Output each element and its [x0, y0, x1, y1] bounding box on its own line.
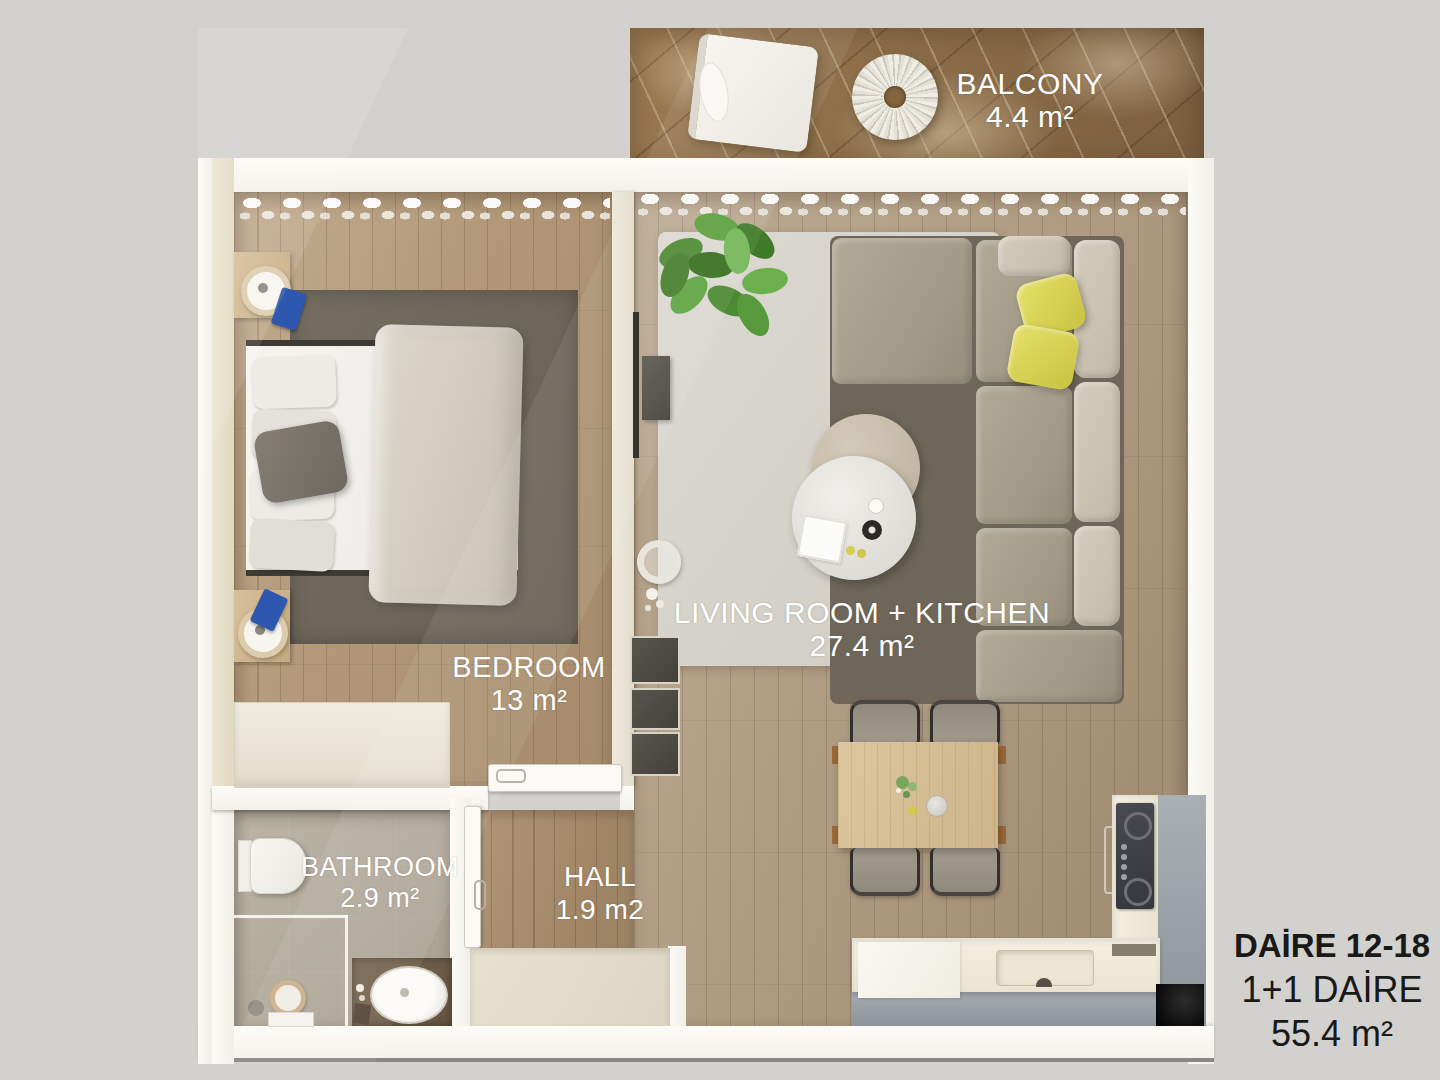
- balcony-area: 4.4 m²: [957, 100, 1104, 133]
- decor-fruit: [846, 546, 855, 555]
- serving-tray: [797, 514, 848, 563]
- sofa-back-cushion: [1074, 382, 1120, 522]
- table-flowers: [896, 776, 909, 789]
- unit-number: DAİRE 12-18: [1224, 924, 1440, 968]
- bed-pillow: [249, 518, 336, 572]
- sofa-chaise: [832, 238, 972, 384]
- table-fruit: [908, 806, 917, 815]
- living-label: LIVING ROOM + KITCHEN 27.4 m²: [674, 596, 1050, 662]
- potted-plant: [650, 210, 790, 350]
- wall-left-beige: [212, 158, 234, 798]
- cabinet: [630, 688, 680, 730]
- bed-duvet: [368, 324, 523, 606]
- wall-bedroom-hall-right: [620, 786, 634, 810]
- wall-hall-stub: [668, 946, 686, 1026]
- cabinet: [630, 732, 680, 776]
- living-area: 27.4 m²: [674, 629, 1050, 662]
- bedroom-wardrobe: [234, 702, 450, 788]
- shower-glass: [345, 915, 348, 1026]
- dining-chair: [850, 848, 920, 896]
- bedroom-door-handle: [496, 769, 526, 783]
- bedroom-area: 13 m²: [452, 684, 605, 717]
- wall-top: [198, 158, 1214, 192]
- entrance-mat: [470, 948, 670, 1026]
- unit-type: 1+1 DAİRE: [1224, 968, 1440, 1012]
- table-jar: [926, 795, 948, 817]
- wall-bedroom-hall-left: [212, 786, 488, 810]
- shower-head: [270, 980, 306, 1016]
- bathroom-door-handle: [474, 880, 486, 910]
- sofa-back-cushion: [1074, 526, 1120, 626]
- bathroom-label: BATHROOM 2.9 m²: [301, 852, 459, 914]
- balcony-wicker-hole: [884, 86, 906, 108]
- hall-area: 1.9 m2: [556, 893, 645, 926]
- counter-drainer: [1112, 944, 1156, 956]
- vanity-box: [353, 1003, 372, 1025]
- floor-plan: BALCONY 4.4 m² BEDROOM 13 m²: [0, 0, 1440, 1080]
- bathroom-area: 2.9 m²: [301, 883, 459, 914]
- title-block: DAİRE 12-18 1+1 DAİRE 55.4 m²: [1224, 924, 1440, 1056]
- bedroom-name: BEDROOM: [452, 651, 605, 684]
- living-name: LIVING ROOM + KITCHEN: [674, 596, 1050, 629]
- unit-total-area: 55.4 m²: [1224, 1012, 1440, 1056]
- decor-dish: [862, 520, 882, 540]
- toilet: [250, 838, 306, 894]
- tv-console: [642, 356, 670, 420]
- bed-pillow: [251, 355, 337, 410]
- wall-left-outer: [198, 158, 212, 1064]
- dining-table: [838, 742, 998, 848]
- hall-name: HALL: [556, 860, 645, 893]
- bathroom-name: BATHROOM: [301, 852, 459, 883]
- cooktop-burner: [1124, 812, 1152, 840]
- cabinet: [630, 636, 680, 684]
- vanity-items: [356, 984, 364, 992]
- wall-bottom: [198, 1026, 1214, 1060]
- balcony-label: BALCONY 4.4 m²: [957, 67, 1104, 133]
- sink-drain: [400, 988, 409, 997]
- shower-bench: [268, 1012, 314, 1027]
- cooktop-knobs: [1121, 844, 1127, 850]
- shower-drain: [248, 1000, 264, 1016]
- kitchen-faucet: [1036, 978, 1052, 987]
- decor-basket: [637, 540, 681, 584]
- cup: [868, 498, 884, 514]
- dining-chair: [930, 700, 1000, 746]
- cooktop-burner: [1124, 878, 1152, 906]
- bathroom-sink: [370, 966, 448, 1024]
- dining-chair: [930, 848, 1000, 896]
- wall-left-lower: [212, 798, 234, 1064]
- plan-bottom-edge: [198, 1058, 1214, 1062]
- bedroom-label: BEDROOM 13 m²: [452, 651, 605, 717]
- dining-chair: [850, 700, 920, 746]
- kitchen-black-appliance: [1156, 984, 1204, 1026]
- sofa-seat: [976, 386, 1072, 524]
- sofa-back-cushion: [998, 236, 1070, 276]
- bed-accent-pillow: [252, 419, 349, 505]
- decor-flowers: [646, 588, 658, 600]
- hall-label: HALL 1.9 m2: [556, 860, 645, 926]
- bedroom-curtain: [240, 194, 610, 224]
- shower-glass: [234, 915, 348, 918]
- under-counter-appliance: [858, 942, 960, 998]
- balcony-name: BALCONY: [957, 67, 1104, 100]
- bathroom-door: [464, 806, 481, 948]
- yellow-pillow: [1005, 323, 1080, 392]
- tv: [633, 312, 639, 458]
- lamp-center: [258, 283, 268, 293]
